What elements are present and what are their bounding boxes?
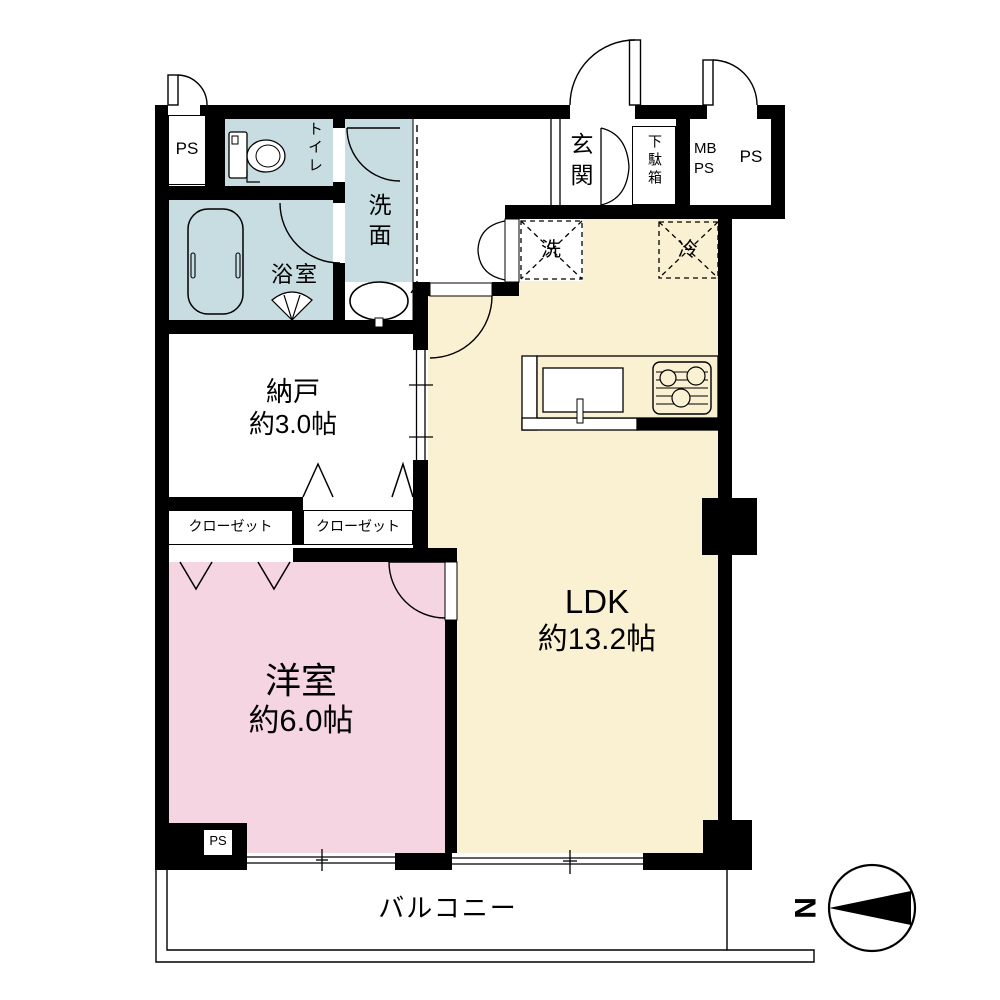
- entrance-label: 玄関: [563, 132, 593, 210]
- plan-linework: [0, 0, 1000, 1000]
- bedroom-door-icon: [389, 562, 457, 620]
- ps-top-label: PS: [168, 139, 206, 159]
- ps-top-door-icon: [168, 75, 207, 105]
- bathroom-label: 浴室: [243, 262, 347, 287]
- shoe-box-double-door-icon: [601, 128, 629, 205]
- storage-name: 納戸: [193, 377, 393, 408]
- ldk-label-group: LDK 約13.2帖: [455, 583, 739, 657]
- ps-bottom-label: PS: [203, 834, 233, 849]
- meter-box-door-icon: [703, 60, 757, 105]
- floor-plan: PS トイレ 洗面 浴室 玄関 下駄箱 MB PS PS 洗 冷 納戸 約3.0…: [0, 0, 1000, 1000]
- entrance-step-line: [551, 119, 560, 205]
- bath-counter-icon: [272, 292, 312, 331]
- mb-ps-label: MB PS: [694, 139, 736, 180]
- washroom-door-icon: [347, 128, 400, 181]
- toilet-label: トイレ: [303, 121, 323, 191]
- bedroom-size: 約6.0帖: [156, 703, 446, 739]
- balcony-label: バルコニー: [298, 894, 598, 924]
- bathroom-door-icon: [280, 203, 340, 263]
- bedroom-label-group: 洋室 約6.0帖: [156, 660, 446, 739]
- ldk-name: LDK: [455, 583, 739, 621]
- closet-left-label: クローゼット: [168, 518, 293, 534]
- laundry-label: 洗: [536, 239, 566, 262]
- storage-partition-line: [409, 350, 433, 460]
- storage-label-group: 納戸 約3.0帖: [193, 377, 393, 440]
- washroom-label: 洗面: [365, 193, 391, 269]
- shoe-box-label: 下駄箱: [646, 134, 663, 204]
- bedroom-name: 洋室: [156, 660, 446, 701]
- closet-right-label: クローゼット: [303, 518, 413, 534]
- ps-right-label: PS: [733, 147, 769, 167]
- compass-north-label: N: [789, 892, 821, 924]
- hall-double-door-icon: [478, 219, 519, 282]
- toilet-icon: [229, 132, 285, 182]
- bathtub-icon: [188, 209, 243, 314]
- compass-icon: [829, 865, 915, 951]
- hall-ldk-door-icon: [430, 283, 492, 358]
- entrance-door-icon: [570, 40, 641, 105]
- washroom-sliding-door-icon: [411, 119, 417, 320]
- stove-icon: [653, 362, 711, 414]
- washbasin-icon: [350, 282, 408, 327]
- ldk-size: 約13.2帖: [455, 623, 739, 658]
- ldk-window-icon: [452, 850, 643, 874]
- storage-size: 約3.0帖: [193, 410, 393, 440]
- fridge-label: 冷: [673, 239, 703, 262]
- bedroom-window-icon: [247, 849, 395, 871]
